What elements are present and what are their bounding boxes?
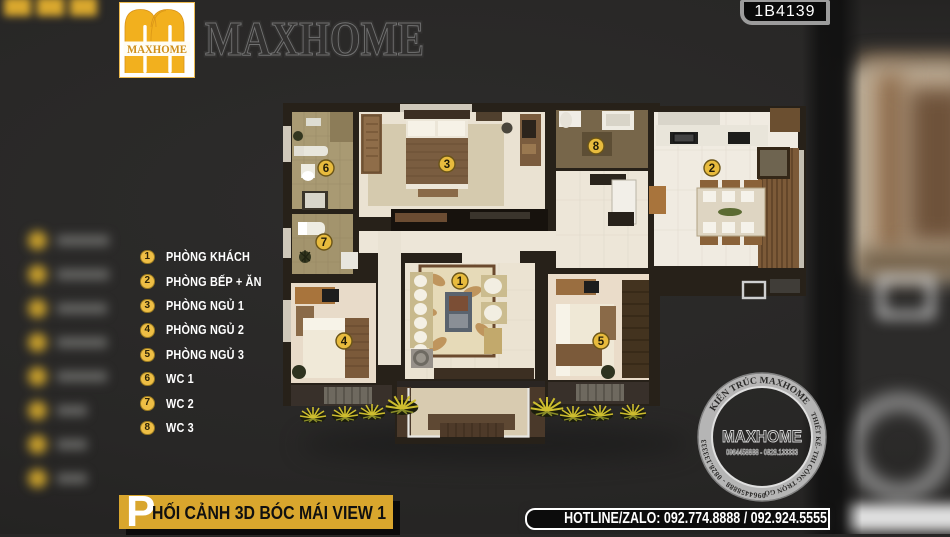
- svg-text:1: 1: [457, 276, 464, 288]
- svg-text:MAXHOME: MAXHOME: [205, 11, 424, 66]
- svg-text:4: 4: [341, 336, 348, 348]
- svg-text:MAXHOME: MAXHOME: [722, 427, 802, 446]
- svg-text:7: 7: [321, 237, 327, 249]
- svg-text:5: 5: [598, 336, 605, 348]
- svg-text:MAXHOME: MAXHOME: [127, 42, 187, 56]
- svg-text:8: 8: [593, 141, 600, 153]
- svg-text:3: 3: [444, 159, 450, 171]
- svg-text:0964458888 - 0828.133333: 0964458888 - 0828.133333: [726, 448, 798, 457]
- svg-text:6: 6: [323, 163, 329, 175]
- svg-text:2: 2: [709, 163, 715, 175]
